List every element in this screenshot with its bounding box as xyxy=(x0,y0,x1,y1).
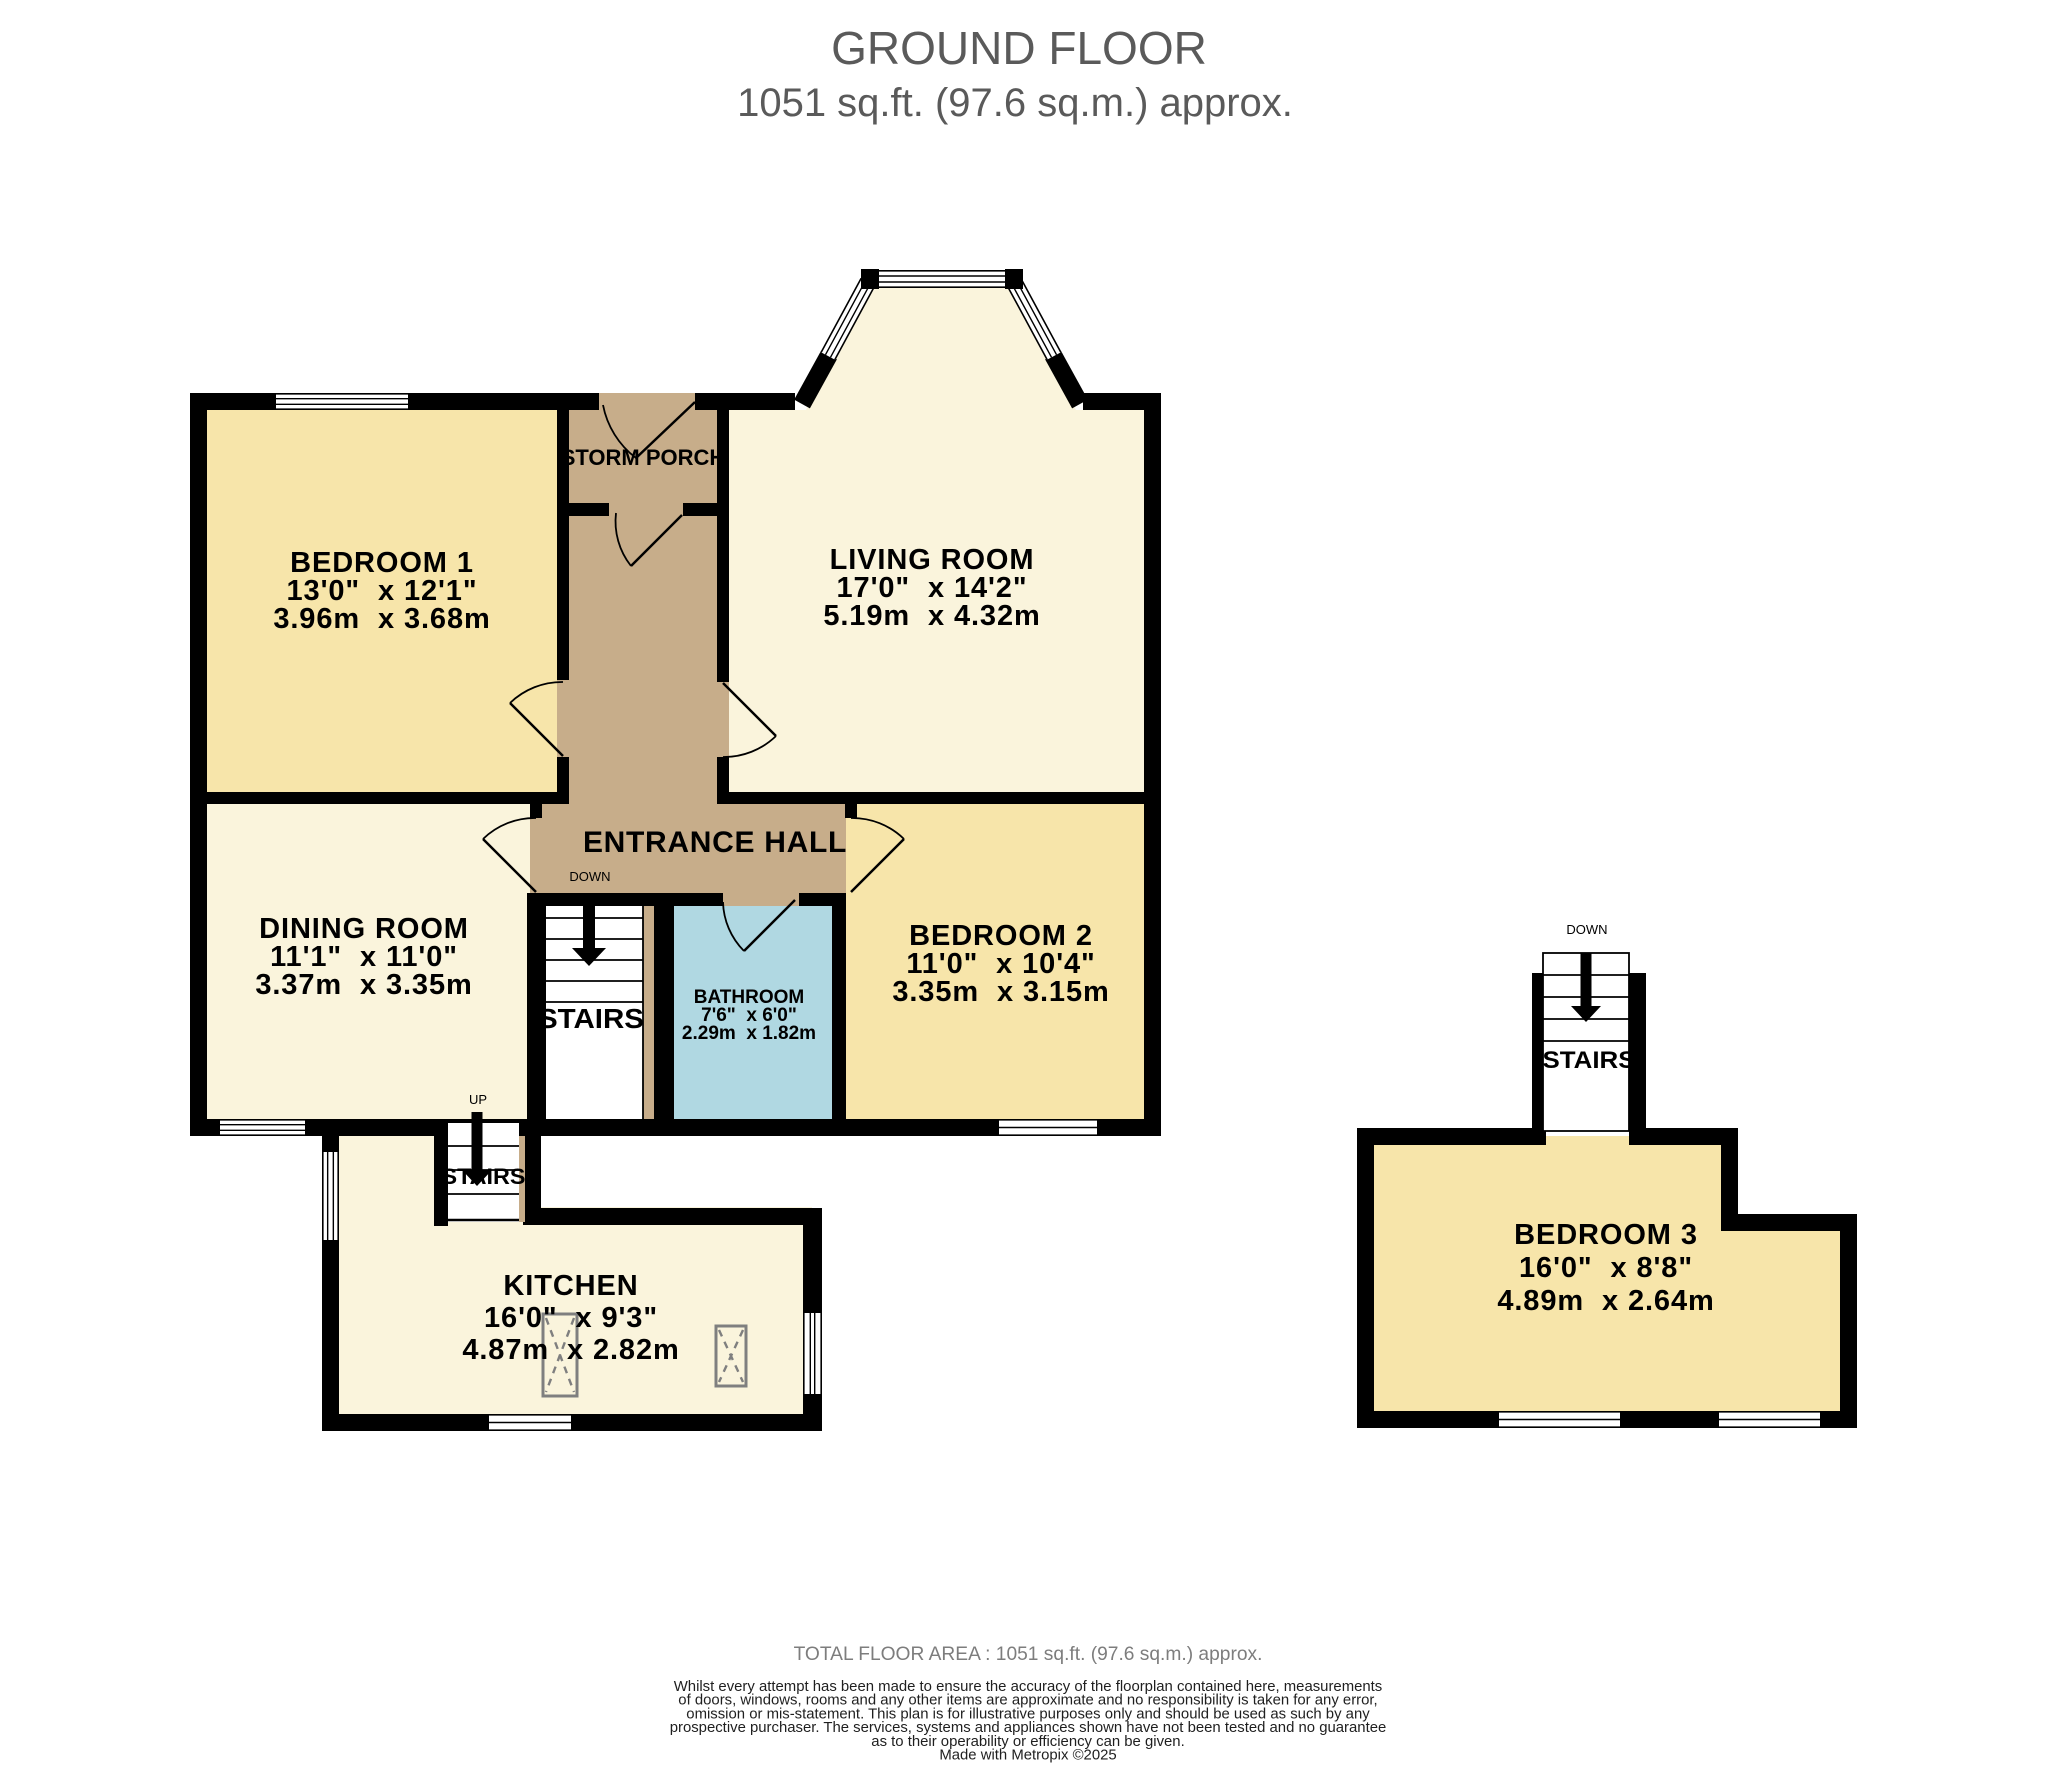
svg-text:2.29m x 1.82m: 2.29m x 1.82m xyxy=(682,1023,816,1044)
svg-text:UP: UP xyxy=(469,1092,487,1107)
svg-text:TOTAL FLOOR AREA : 1051 sq.ft.: TOTAL FLOOR AREA : 1051 sq.ft. (97.6 sq.… xyxy=(794,1644,1263,1665)
svg-text:KITCHEN: KITCHEN xyxy=(503,1270,638,1302)
svg-text:4.87m x 2.82m: 4.87m x 2.82m xyxy=(462,1334,679,1366)
svg-text:3.37m x 3.35m: 3.37m x 3.35m xyxy=(255,969,472,1001)
svg-text:16'0" x 9'3": 16'0" x 9'3" xyxy=(484,1302,658,1334)
svg-text:4.89m x 2.64m: 4.89m x 2.64m xyxy=(1497,1285,1714,1317)
svg-text:STAIRS: STAIRS xyxy=(538,1003,644,1034)
svg-text:3.35m x 3.15m: 3.35m x 3.15m xyxy=(892,976,1109,1008)
svg-text:STAIRS: STAIRS xyxy=(1543,1047,1636,1074)
svg-text:1051 sq.ft. (97.6 sq.m.) appro: 1051 sq.ft. (97.6 sq.m.) approx. xyxy=(737,81,1293,125)
svg-text:STORM PORCH: STORM PORCH xyxy=(561,445,726,470)
svg-text:ENTRANCE HALL: ENTRANCE HALL xyxy=(583,826,847,859)
svg-text:5.19m x 4.32m: 5.19m x 4.32m xyxy=(823,600,1040,632)
svg-text:GROUND FLOOR: GROUND FLOOR xyxy=(831,22,1207,74)
svg-text:BEDROOM 3: BEDROOM 3 xyxy=(1514,1219,1698,1251)
svg-text:DOWN: DOWN xyxy=(1566,922,1607,937)
svg-text:DOWN: DOWN xyxy=(569,869,610,884)
svg-text:16'0" x 8'8": 16'0" x 8'8" xyxy=(1519,1252,1693,1284)
svg-text:STAIRS: STAIRS xyxy=(442,1164,526,1189)
svg-text:3.96m x 3.68m: 3.96m x 3.68m xyxy=(273,603,490,635)
svg-text:Made with Metropix ©2025: Made with Metropix ©2025 xyxy=(939,1748,1116,1764)
